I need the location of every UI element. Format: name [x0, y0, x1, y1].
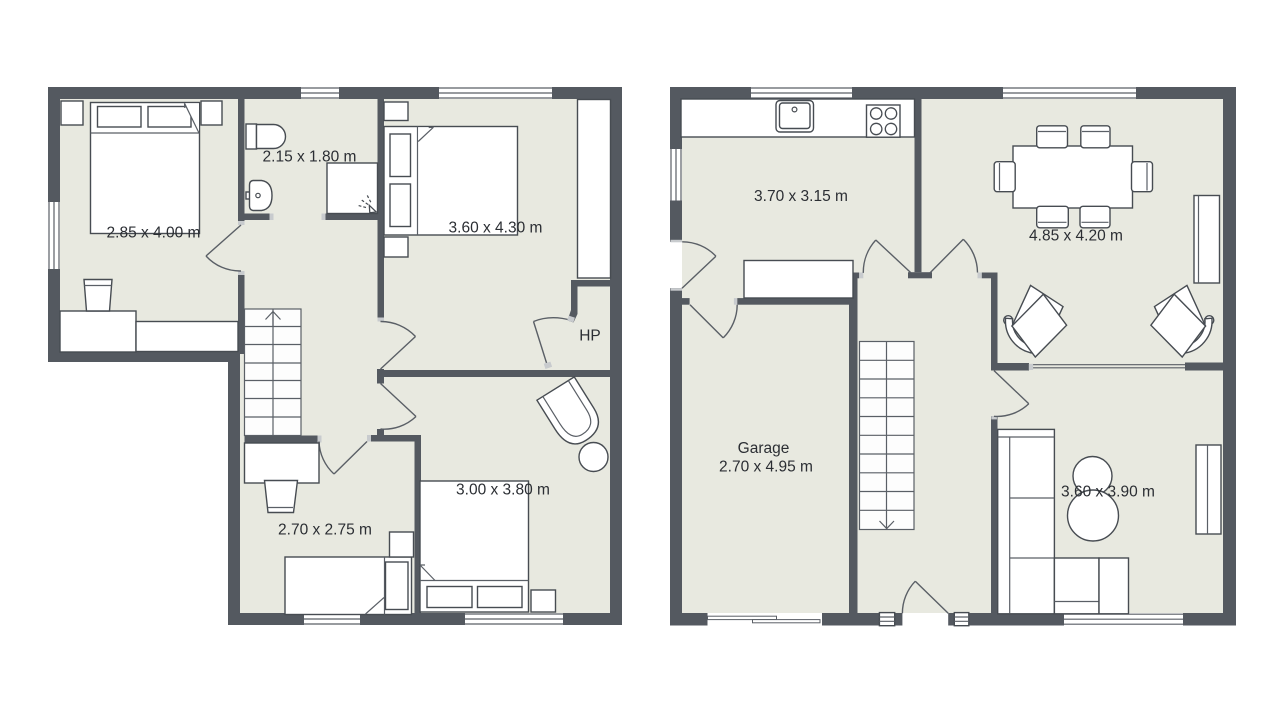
- svg-text:HP: HP: [579, 328, 601, 345]
- svg-text:3.60 x 3.90 m: 3.60 x 3.90 m: [1061, 484, 1155, 501]
- svg-text:3.60 x 4.30 m: 3.60 x 4.30 m: [449, 220, 543, 237]
- svg-text:2.70 x 2.75 m: 2.70 x 2.75 m: [278, 522, 372, 539]
- svg-text:3.70 x 3.15 m: 3.70 x 3.15 m: [754, 188, 848, 205]
- svg-text:2.85 x 4.00 m: 2.85 x 4.00 m: [107, 225, 201, 242]
- svg-text:2.15 x 1.80 m: 2.15 x 1.80 m: [263, 149, 357, 166]
- svg-text:4.85 x 4.20 m: 4.85 x 4.20 m: [1029, 228, 1123, 245]
- svg-text:Garage: Garage: [738, 440, 790, 457]
- svg-text:3.00 x 3.80 m: 3.00 x 3.80 m: [456, 482, 550, 499]
- svg-text:2.70 x 4.95 m: 2.70 x 4.95 m: [719, 459, 813, 476]
